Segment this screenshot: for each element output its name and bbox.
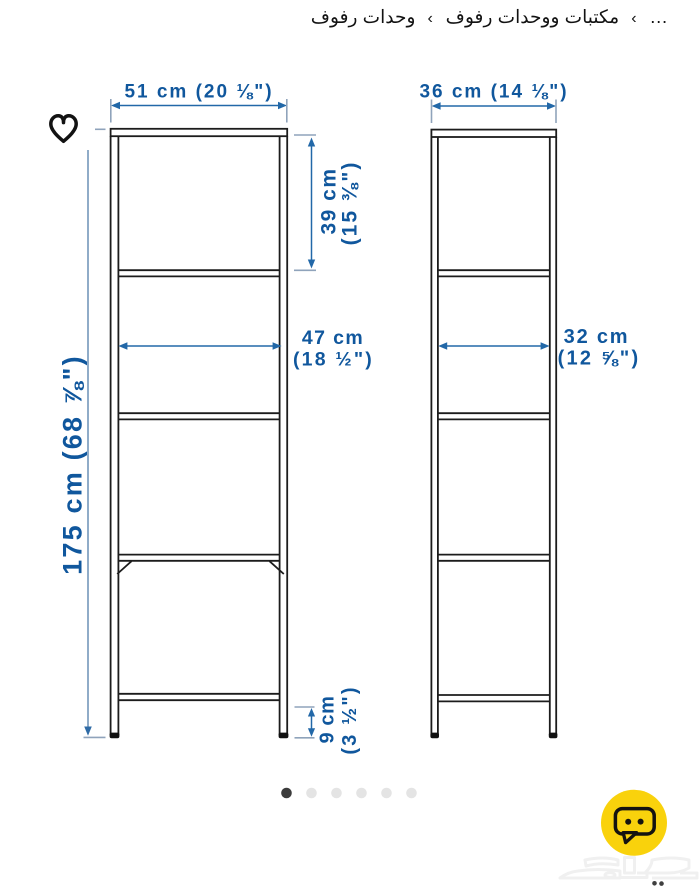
svg-text:(12 ⅝"): (12 ⅝") — [558, 348, 641, 370]
svg-text:47 cm: 47 cm — [302, 327, 364, 349]
svg-text:51 cm (20 ⅛"): 51 cm (20 ⅛") — [124, 82, 273, 103]
svg-text:175 cm (68 ⅞"): 175 cm (68 ⅞") — [58, 354, 88, 575]
svg-text:9 cm: 9 cm — [317, 696, 339, 744]
svg-text:(18 ½"): (18 ½") — [293, 349, 374, 371]
svg-text:32 cm: 32 cm — [564, 326, 630, 348]
svg-text:(15 ⅜"): (15 ⅜") — [339, 161, 362, 246]
svg-text:(3 ½"): (3 ½") — [339, 685, 361, 754]
svg-text:39 cm: 39 cm — [318, 167, 341, 234]
svg-text:36 cm (14 ⅛"): 36 cm (14 ⅛") — [419, 82, 568, 103]
